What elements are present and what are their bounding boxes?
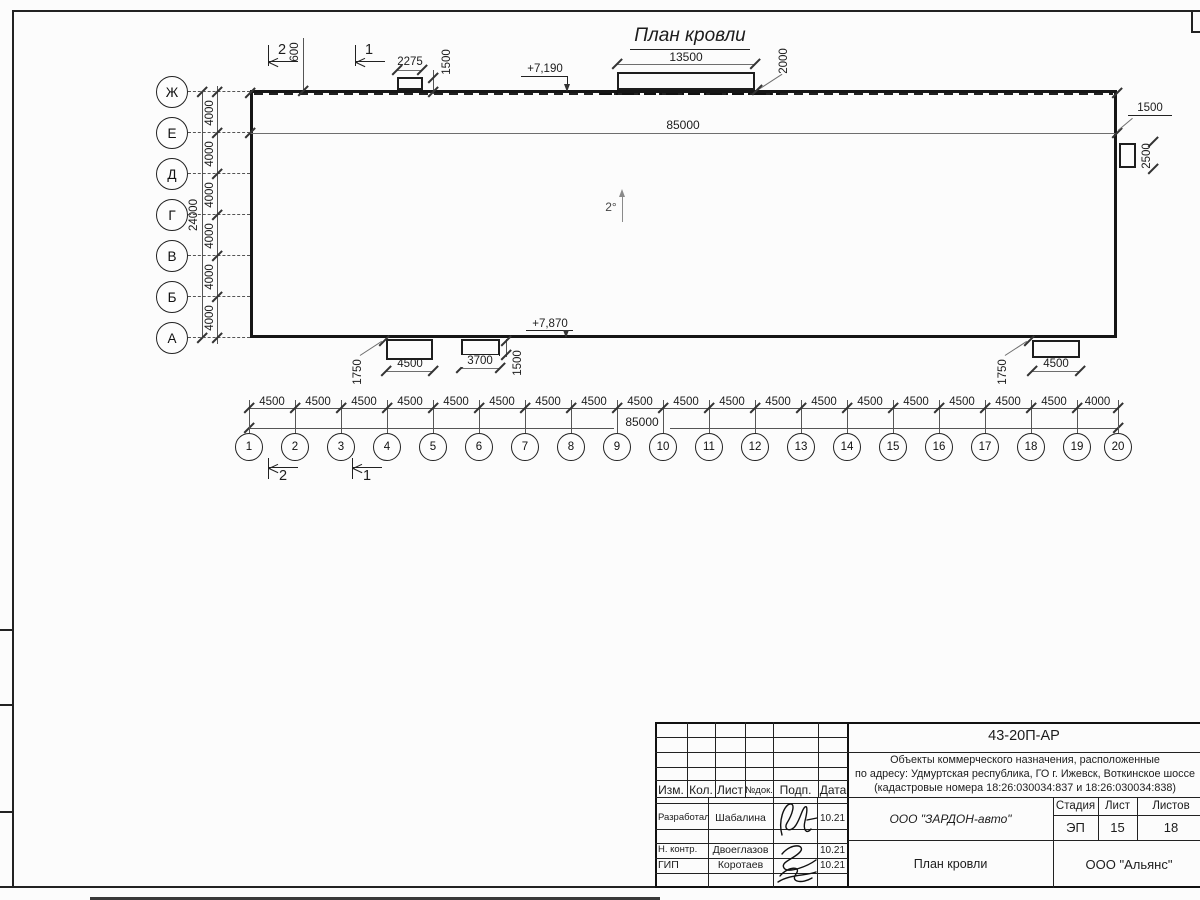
tb-name-1: Шабалина [708, 812, 773, 824]
dim-label-24000: 24000 [188, 193, 200, 237]
tb-role-3: ГИП [658, 859, 708, 871]
tb-header-list: Лист [715, 783, 745, 797]
tb-grid-line [655, 767, 848, 768]
margin-tick [0, 629, 12, 631]
tb-grid-line [1053, 815, 1200, 816]
col-axis-bubble-10: 10 [649, 433, 677, 461]
roof-opening [397, 77, 423, 90]
col-axis-bubble-18: 18 [1017, 433, 1045, 461]
tb-grid-line [655, 803, 848, 804]
dim-label-85000-top: 85000 [655, 118, 711, 132]
col-axis-bubble-11: 11 [695, 433, 723, 461]
signature-1 [774, 799, 818, 841]
tb-sheets-label: Листов [1137, 800, 1200, 812]
row-axis-line [188, 337, 250, 338]
col-bay-label: 4500 [991, 396, 1025, 408]
leader-line [1118, 118, 1133, 131]
slope-arrow-line [622, 196, 623, 222]
tb-contractor: ООО "Альянс" [1053, 857, 1200, 872]
col-axis-bubble-2: 2 [281, 433, 309, 461]
tb-name-2: Двоеглазов [708, 844, 773, 856]
col-axis-bubble-14: 14 [833, 433, 861, 461]
col-bay-label: 4500 [761, 396, 795, 408]
col-bay-label: 4500 [853, 396, 887, 408]
col-bay-label: 4500 [439, 396, 473, 408]
col-axis-bubble-5: 5 [419, 433, 447, 461]
row-axis-line [188, 173, 250, 174]
dim-label-1500-bottom: 1500 [512, 343, 524, 383]
col-axis-bubble-6: 6 [465, 433, 493, 461]
corner-box-vline [1191, 10, 1193, 32]
signature-2 [772, 840, 822, 886]
col-axis-bubble-19: 19 [1063, 433, 1091, 461]
dim-label-600: 600 [289, 35, 301, 69]
col-bay-label: 4500 [899, 396, 933, 408]
wall-protrusion-bottom-1 [386, 339, 433, 360]
row-axis-line [188, 296, 250, 297]
frame-left-line [12, 10, 14, 887]
col-bay-label: 4500 [485, 396, 519, 408]
doc-number: 43-20П-АР [848, 728, 1200, 744]
dim-line [1032, 371, 1080, 372]
row-axis-line [188, 132, 250, 133]
tb-header-podp: Подп. [773, 783, 818, 797]
dim-chain-cols [249, 408, 1118, 409]
project-name-line2: по адресу: Удмуртская республика, ГО г. … [848, 768, 1200, 780]
tb-grid-line [655, 752, 1200, 753]
margin-tick [0, 811, 12, 813]
row-axis-line [188, 255, 250, 256]
dim-label-85000-bottom: 85000 [614, 415, 670, 429]
project-name-line1: Объекты коммерческого назначения, распол… [848, 754, 1200, 766]
dim-line [386, 371, 433, 372]
row-bay-label: 4000 [204, 136, 216, 172]
tb-date-1: 10.21 [817, 813, 848, 824]
col-bay-label: 4500 [623, 396, 657, 408]
tb-stage-value: ЭП [1053, 820, 1098, 835]
row-axis-bubble-Д: Д [156, 158, 188, 190]
col-axis-bubble-7: 7 [511, 433, 539, 461]
dim-label-1500-right: 1500 [1130, 102, 1170, 114]
dim-line [461, 368, 500, 369]
col-axis-bubble-12: 12 [741, 433, 769, 461]
col-axis-bubble-20: 20 [1104, 433, 1132, 461]
ext-line [303, 38, 304, 91]
tb-sheet-label: Лист [1098, 800, 1137, 812]
tb-company: ООО "ЗАРДОН-авто" [848, 812, 1053, 826]
wall-protrusion-bottom-3 [1032, 340, 1080, 358]
dim-label-13500: 13500 [661, 50, 711, 64]
dim-label-1500: 1500 [441, 44, 453, 80]
tb-header-data: Дата [818, 783, 848, 797]
col-bay-label: 4500 [945, 396, 979, 408]
row-axis-bubble-Е: Е [156, 117, 188, 149]
project-name-line3: (кадастровые номера 18:26:030034:837 и 1… [848, 782, 1200, 794]
tb-name-3: Коротаев [708, 859, 773, 871]
col-bay-label: 4500 [715, 396, 749, 408]
col-axis-bubble-8: 8 [557, 433, 585, 461]
col-bay-label: 4500 [807, 396, 841, 408]
wall-protrusion-right [1119, 143, 1136, 168]
dim-line-85000-top [250, 133, 1117, 134]
col-bay-label: 4500 [577, 396, 611, 408]
col-axis-bubble-1: 1 [235, 433, 263, 461]
row-bay-label: 4000 [204, 300, 216, 336]
elevation-arrow-icon [563, 330, 569, 338]
row-bay-label: 4000 [204, 177, 216, 213]
row-axis-bubble-А: А [156, 322, 188, 354]
col-bay-label: 4500 [393, 396, 427, 408]
dim-label-2275: 2275 [391, 56, 429, 68]
tb-role-1: Разработал [658, 812, 708, 823]
dim-label-2500: 2500 [1141, 136, 1153, 176]
leader-underline [1128, 115, 1172, 116]
col-axis-bubble-16: 16 [925, 433, 953, 461]
col-axis-bubble-9: 9 [603, 433, 631, 461]
col-axis-bubble-4: 4 [373, 433, 401, 461]
dim-line-85000-bottom [249, 428, 1118, 429]
drawing-sheet: План кровли 85000 2° 24000 Ж4000Е4000Д40… [0, 0, 1200, 900]
tb-grid-line [848, 840, 1200, 841]
wall-protrusion-bottom-2 [461, 339, 500, 356]
row-bay-label: 4000 [204, 259, 216, 295]
col-axis-bubble-3: 3 [327, 433, 355, 461]
tb-grid-line [655, 737, 848, 738]
dim-label-4500-left: 4500 [391, 358, 429, 370]
dim-label-3700: 3700 [461, 355, 499, 367]
col-bay-label: 4500 [531, 396, 565, 408]
dim-label-1750-right: 1750 [997, 352, 1009, 392]
dim-label-2000: 2000 [778, 41, 790, 81]
margin-tick [0, 704, 12, 706]
tb-header-ndok: №док. [745, 785, 773, 796]
row-axis-bubble-В: В [156, 240, 188, 272]
section-label: 1 [360, 468, 374, 484]
tb-grid-line [655, 780, 848, 781]
tb-drawing-title: План кровли [848, 857, 1053, 871]
col-bay-label: 4500 [301, 396, 335, 408]
row-axis-bubble-Б: Б [156, 281, 188, 313]
row-axis-line [188, 214, 250, 215]
tb-sheet-value: 15 [1098, 820, 1137, 835]
elevation-label: +7,870 [528, 318, 572, 330]
elevation-label: +7,190 [523, 63, 567, 75]
col-axis-bubble-17: 17 [971, 433, 999, 461]
tb-grid-line [655, 829, 848, 830]
tb-header-kol: Кол. [687, 783, 715, 797]
row-axis-bubble-Ж: Ж [156, 76, 188, 108]
section-label: 2 [276, 468, 290, 484]
tb-header-izm: Изм. [655, 783, 687, 797]
dim-line-24000 [202, 92, 203, 338]
col-bay-label: 4500 [669, 396, 703, 408]
row-axis-line [188, 91, 250, 92]
elevation-arrow-icon [564, 84, 570, 92]
section-label: 2 [275, 42, 289, 58]
dim-label-1750-left: 1750 [352, 352, 364, 392]
page-title: План кровли [630, 25, 750, 50]
col-bay-label: 4000 [1081, 396, 1115, 408]
slope-label: 2° [600, 200, 622, 214]
corner-box-hline [1191, 31, 1200, 33]
frame-top-line [12, 10, 1200, 12]
elevation-underline [521, 76, 568, 77]
roof-canopy [617, 72, 755, 90]
row-bay-label: 4000 [204, 218, 216, 254]
section-label: 1 [362, 42, 376, 58]
slope-arrow-icon [619, 189, 625, 197]
row-axis-bubble-Г: Г [156, 199, 188, 231]
dim-label-4500-right: 4500 [1037, 358, 1075, 370]
tb-role-2: Н. контр. [658, 844, 708, 855]
col-bay-label: 4500 [1037, 396, 1071, 408]
col-axis-bubble-15: 15 [879, 433, 907, 461]
tb-stage-label: Стадия [1053, 800, 1098, 812]
col-bay-label: 4500 [255, 396, 289, 408]
col-bay-label: 4500 [347, 396, 381, 408]
tb-sheets-value: 18 [1137, 820, 1200, 835]
row-bay-label: 4000 [204, 95, 216, 131]
col-axis-bubble-13: 13 [787, 433, 815, 461]
